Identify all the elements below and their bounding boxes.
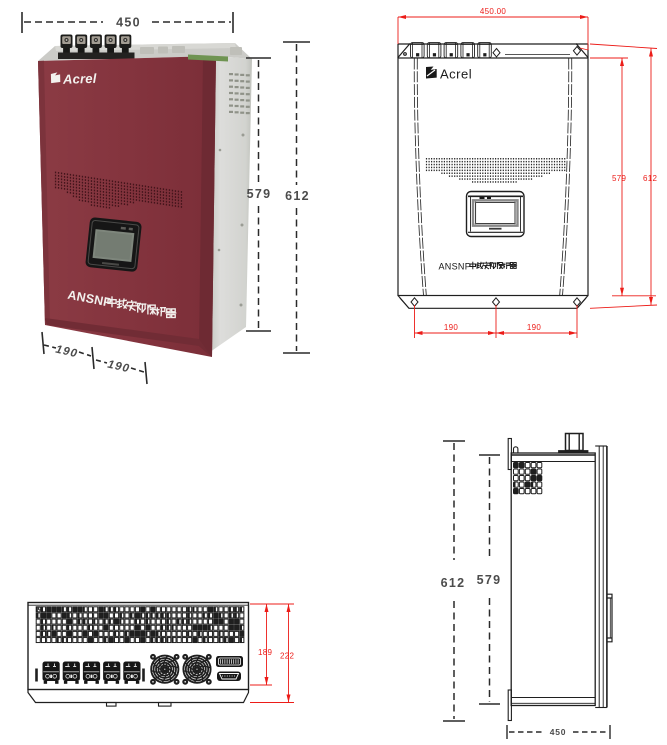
svg-text:579: 579 [612, 174, 626, 183]
svg-text:612: 612 [643, 174, 657, 183]
svg-text:190: 190 [527, 323, 541, 332]
svg-text:222: 222 [280, 652, 294, 661]
svg-text:ANSNP: ANSNP [439, 262, 472, 272]
svg-text:579: 579 [477, 573, 502, 587]
svg-text:Acrel: Acrel [440, 67, 472, 82]
svg-text:612: 612 [285, 189, 310, 203]
svg-text:450: 450 [550, 727, 567, 737]
svg-text:579: 579 [247, 187, 272, 201]
svg-text:450.00: 450.00 [480, 7, 507, 16]
svg-text:450: 450 [116, 16, 141, 30]
svg-text:190: 190 [444, 323, 458, 332]
svg-text:612: 612 [441, 576, 466, 590]
svg-text:Acrel: Acrel [62, 71, 97, 87]
svg-text:189: 189 [258, 648, 272, 657]
